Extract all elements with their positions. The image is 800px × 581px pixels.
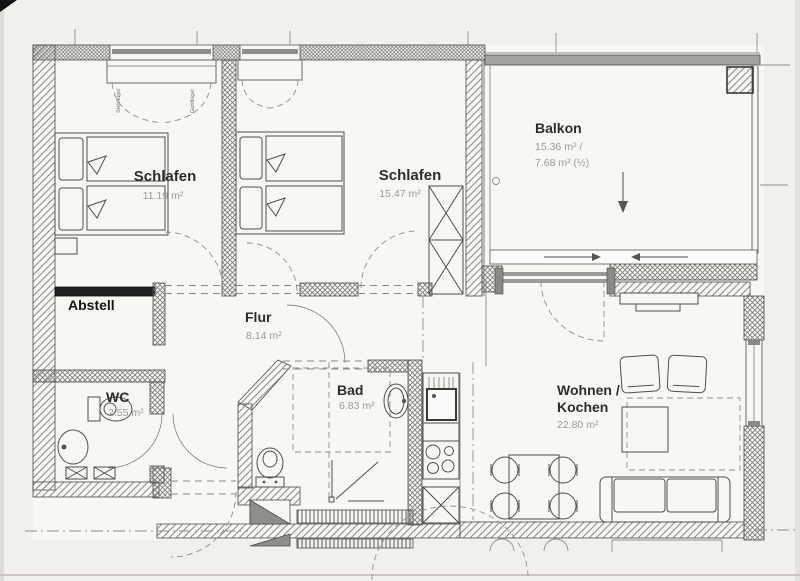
wall-segment [300, 45, 485, 60]
wall-segment [300, 283, 358, 296]
window-sash-label: Stehflügel [116, 89, 122, 113]
storage-wall-dark-bar [55, 287, 155, 296]
wall-segment [238, 404, 252, 488]
wall-segment [744, 426, 764, 540]
room-area-flur: 8.14 m² [246, 330, 282, 342]
room-label-schlafen1: Schlafen [134, 168, 197, 185]
wall-segment [368, 360, 408, 372]
room-label-bad: Bad [337, 382, 363, 398]
balcony-door-sill [502, 279, 608, 283]
room-label-schlafen2: Schlafen [379, 167, 442, 184]
balcony-slab-edge [490, 250, 757, 264]
room-label-wohnen-1: Wohnen / [557, 382, 620, 398]
room-label-wohnen-2: Kochen [557, 399, 608, 415]
wall-segment [150, 382, 164, 414]
room-label-abstell: Abstell [68, 297, 115, 313]
wall-pillar [153, 283, 165, 345]
wall-segment [408, 360, 422, 525]
room-area-wohnen: 22.80 m² [557, 419, 599, 431]
wall-segment [33, 482, 159, 497]
wall-pillar [150, 466, 164, 483]
door-jamb [495, 268, 503, 294]
scan-right-edge [795, 0, 800, 581]
window-sash-label: Gehflügel [190, 89, 196, 113]
room-label-balkon: Balkon [535, 120, 582, 136]
wall-segment [222, 60, 236, 296]
room-area-schlafen1: 11.19 m² [143, 190, 184, 202]
wall-segment [466, 60, 482, 296]
room-label-flur: Flur [245, 309, 272, 325]
room-area-bad: 6.83 m² [339, 400, 375, 412]
door-jamb [607, 268, 615, 294]
room-area-schlafen2: 15.47 m² [379, 188, 421, 200]
living-room-window [746, 340, 762, 426]
shaft-stripes [297, 510, 413, 523]
wall-segment [33, 370, 165, 382]
wall-segment [610, 264, 757, 280]
room-area-balkon-2: 7.68 m² (½) [535, 157, 589, 169]
scanned-floor-plan-page: Stehflügel Gehflügel [0, 0, 800, 581]
shaft-stripes [297, 539, 413, 548]
balcony-corner-post [727, 67, 753, 93]
balcony-door-sill [500, 272, 610, 276]
wall-segment [460, 522, 744, 538]
wall-segment [744, 296, 764, 340]
wall-segment [33, 45, 55, 490]
room-label-wc: WC [106, 389, 129, 405]
floor-plan-drawing: Stehflügel Gehflügel [0, 0, 800, 581]
kitchen-sink-icon [427, 389, 456, 420]
room-area-balkon-1: 15.36 m² / [535, 141, 582, 153]
room-area-wc: 2.55 m² [108, 407, 144, 419]
wall-segment [213, 45, 240, 60]
balcony-parapet [485, 55, 760, 65]
scan-left-edge [0, 0, 4, 581]
